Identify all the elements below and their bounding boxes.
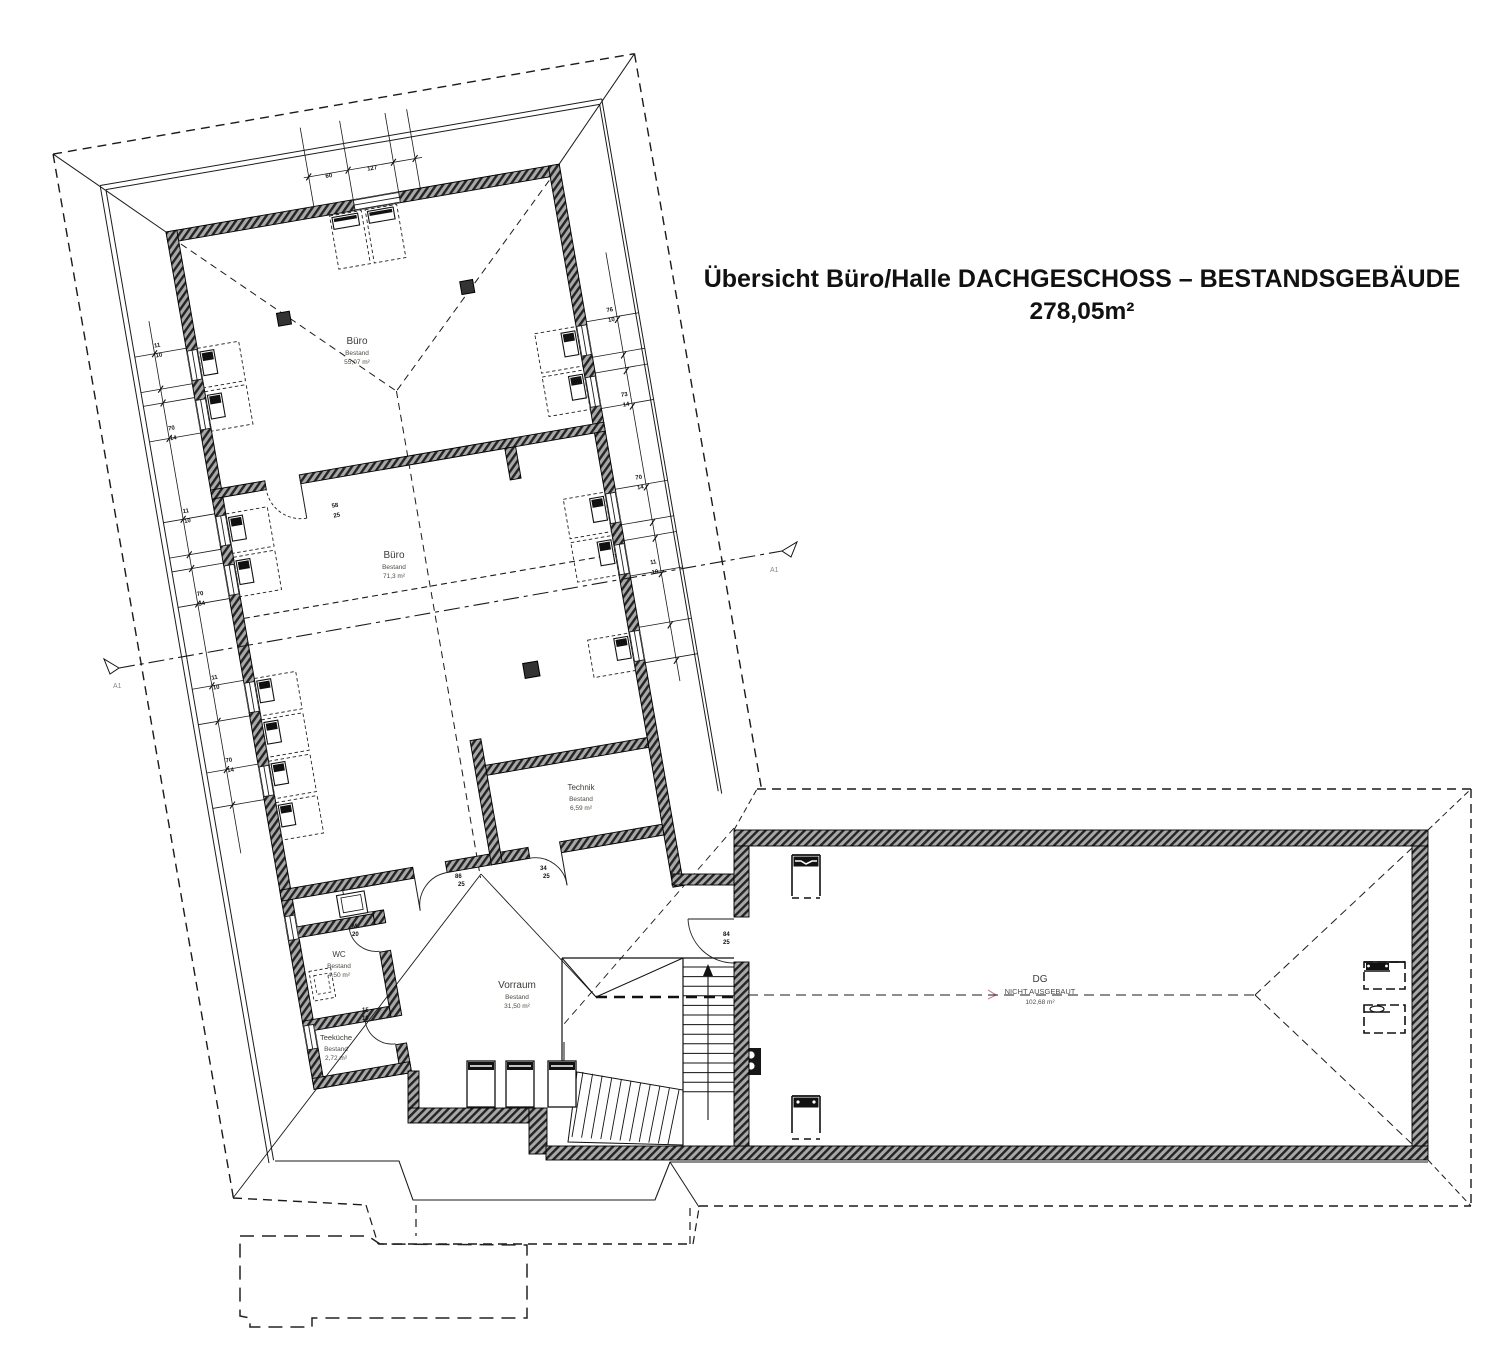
svg-text:Vorraum: Vorraum xyxy=(498,980,536,991)
svg-text:84: 84 xyxy=(723,932,730,938)
svg-text:55,07 m²: 55,07 m² xyxy=(344,359,370,366)
svg-text:86: 86 xyxy=(455,874,462,880)
svg-text:4,50 m²: 4,50 m² xyxy=(328,972,351,979)
svg-text:Bestand: Bestand xyxy=(382,564,406,571)
svg-text:NICHT AUSGEBAUT: NICHT AUSGEBAUT xyxy=(1005,987,1076,996)
svg-text:Büro: Büro xyxy=(383,550,405,561)
svg-text:102,68 m²: 102,68 m² xyxy=(1025,999,1055,1006)
svg-text:Büro: Büro xyxy=(346,336,368,347)
svg-text:34: 34 xyxy=(540,866,547,872)
svg-text:A1: A1 xyxy=(770,567,779,574)
svg-text:WC: WC xyxy=(332,950,346,959)
svg-text:20: 20 xyxy=(352,932,359,938)
svg-text:M: M xyxy=(352,924,357,930)
svg-text:Bestand: Bestand xyxy=(345,350,369,357)
svg-text:Bestand: Bestand xyxy=(327,963,351,970)
svg-text:2,72 m²: 2,72 m² xyxy=(325,1055,348,1062)
svg-text:A1: A1 xyxy=(113,683,122,690)
svg-text:DG: DG xyxy=(1033,974,1048,985)
svg-text:15: 15 xyxy=(362,1008,369,1014)
svg-text:Übersicht Büro/Halle DACHGESCH: Übersicht Büro/Halle DACHGESCHOSS – BEST… xyxy=(704,264,1461,293)
svg-text:Bestand: Bestand xyxy=(505,994,529,1001)
svg-text:Bestand: Bestand xyxy=(569,796,593,803)
svg-text:25: 25 xyxy=(458,882,465,888)
svg-text:278,05m²: 278,05m² xyxy=(1030,298,1135,325)
svg-text:31,50 m²: 31,50 m² xyxy=(504,1003,530,1010)
svg-text:6,59 m²: 6,59 m² xyxy=(570,805,593,812)
svg-text:Teeküche: Teeküche xyxy=(320,1033,352,1042)
svg-text:71,3 m²: 71,3 m² xyxy=(383,573,406,580)
svg-text:25: 25 xyxy=(543,874,550,880)
svg-text:Technik: Technik xyxy=(567,783,595,792)
svg-text:25: 25 xyxy=(723,940,730,946)
